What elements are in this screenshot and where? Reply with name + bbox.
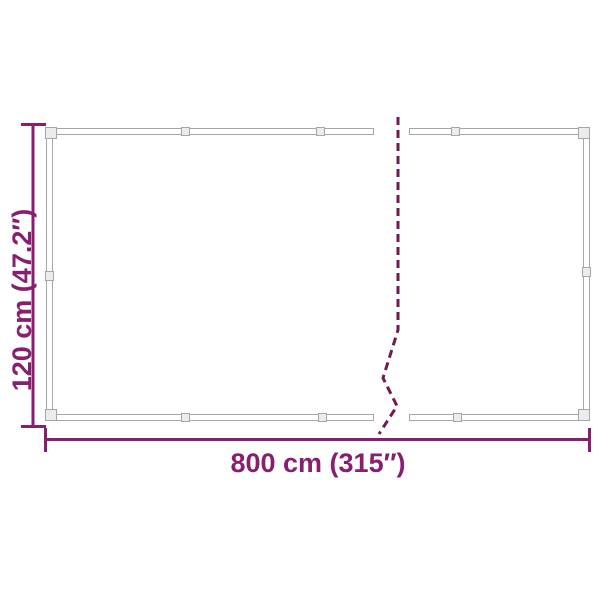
grommet-bottom-1 xyxy=(182,414,190,422)
grommet-bottom-3 xyxy=(454,414,462,422)
height-dimension: 120 cm (47.2″) xyxy=(7,124,46,427)
grommet-top-3 xyxy=(452,128,460,136)
frame-edge-bottom-right xyxy=(410,415,590,421)
grommet-left-mid xyxy=(46,272,54,281)
break-line xyxy=(379,117,398,434)
grommet-bottom-2 xyxy=(319,414,327,422)
grommet-right-mid xyxy=(583,268,591,277)
height-dimension-label: 120 cm (47.2″) xyxy=(7,209,37,392)
width-dimension-label: 800 cm (315″) xyxy=(230,448,405,478)
dimension-diagram: 120 cm (47.2″) 800 cm (315″) xyxy=(0,0,600,600)
grommets xyxy=(46,128,591,422)
grommet-corner-bottom-left xyxy=(46,410,57,421)
dimension-diagram-canvas: 120 cm (47.2″) 800 cm (315″) xyxy=(0,0,600,600)
width-dimension: 800 cm (315″) xyxy=(45,428,591,478)
tarp-frame xyxy=(47,129,590,421)
grommet-corner-top-left xyxy=(46,128,57,139)
grommet-corner-bottom-right xyxy=(579,410,590,421)
frame-edge-top-right xyxy=(410,129,590,135)
grommet-top-2 xyxy=(317,128,325,136)
grommet-corner-top-right xyxy=(579,128,590,139)
grommet-top-1 xyxy=(182,128,190,136)
